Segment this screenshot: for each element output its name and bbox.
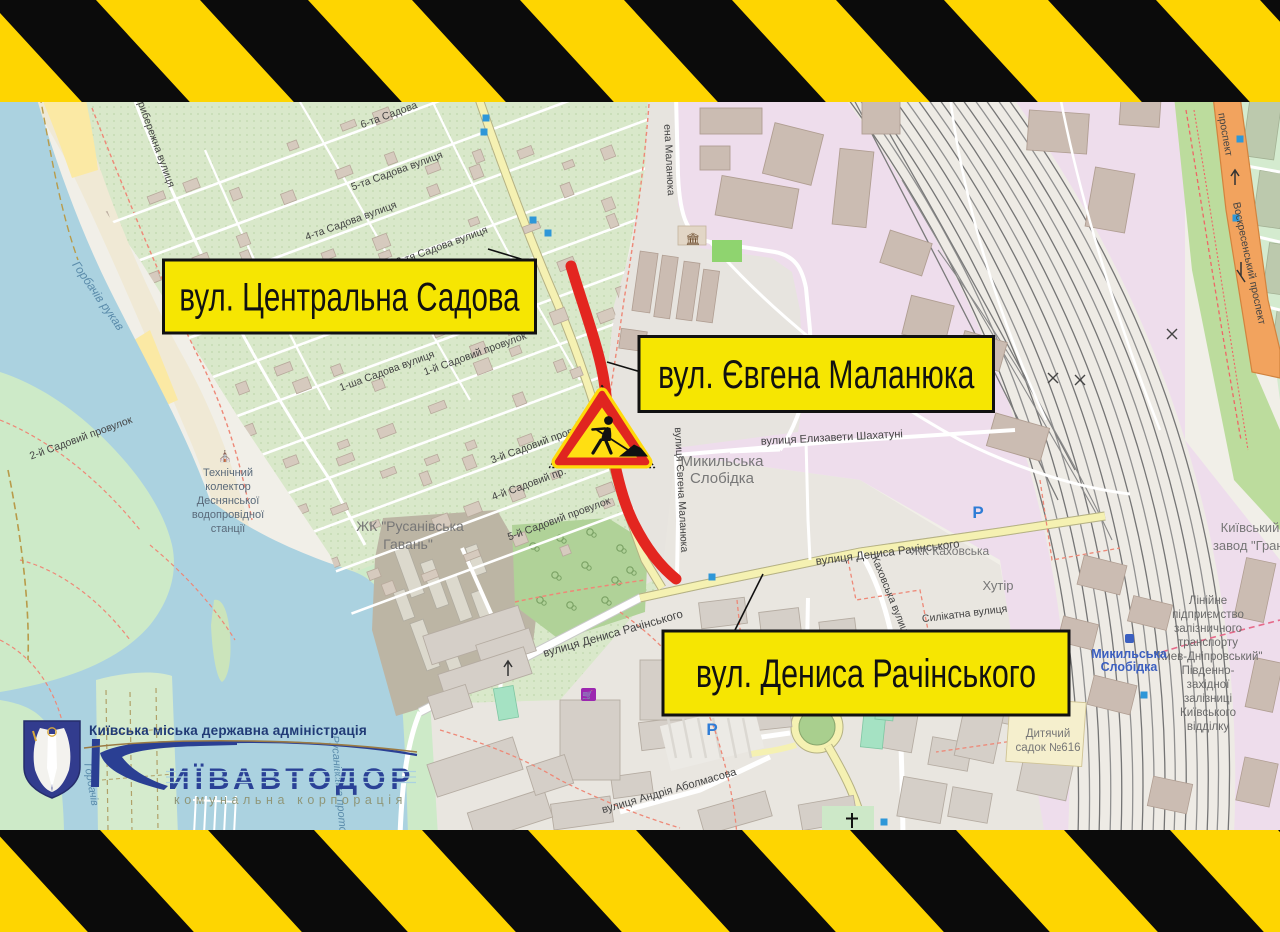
svg-text:Хутір: Хутір bbox=[983, 578, 1014, 593]
svg-text:завод "Граніт": завод "Граніт" bbox=[1213, 538, 1280, 553]
svg-text:садок №616: садок №616 bbox=[1015, 742, 1080, 754]
svg-text:Микильська: Микильська bbox=[1091, 647, 1168, 661]
svg-text:Київського: Київського bbox=[1180, 707, 1236, 719]
svg-text:Гавань": Гавань" bbox=[383, 536, 433, 552]
svg-text:Київський: Київський bbox=[1221, 520, 1280, 535]
svg-text:Дитячий: Дитячий bbox=[1026, 728, 1071, 740]
svg-text:🏛: 🏛 bbox=[685, 232, 700, 246]
svg-text:залізничного: залізничного bbox=[1174, 623, 1242, 635]
svg-text:Київська міська державна адмін: Київська міська державна адміністрація bbox=[89, 723, 367, 738]
svg-text:станції: станції bbox=[211, 523, 245, 535]
svg-text:Микильська: Микильська bbox=[681, 453, 765, 470]
svg-text:P: P bbox=[972, 503, 983, 522]
svg-text:залізниці: залізниці bbox=[1184, 693, 1232, 705]
svg-text:вул. Центральна Садова: вул. Центральна Садова bbox=[179, 275, 520, 319]
svg-text:P: P bbox=[706, 720, 717, 739]
svg-text:водопровідної: водопровідної bbox=[192, 509, 264, 521]
svg-text:відділку: відділку bbox=[1187, 721, 1230, 733]
svg-text:підприємство: підприємство bbox=[1172, 609, 1244, 621]
svg-text:Слобідка: Слобідка bbox=[690, 470, 755, 487]
svg-text:Лінійне: Лінійне bbox=[1189, 595, 1227, 607]
svg-text:⛪: ⛪ bbox=[218, 449, 232, 463]
svg-text:Деснянської: Деснянської bbox=[197, 495, 260, 507]
svg-text:Технічний: Технічний bbox=[203, 467, 253, 479]
svg-text:ИЇВАВТОДОР: ИЇВАВТОДОР bbox=[168, 763, 415, 796]
svg-text:🛒: 🛒 bbox=[582, 689, 593, 700]
svg-text:Слобідка: Слобідка bbox=[1101, 660, 1159, 674]
svg-text:західної: західної bbox=[1187, 679, 1230, 691]
svg-text:вул. Євгена Маланюка: вул. Євгена Маланюка bbox=[658, 353, 975, 397]
svg-text:ЖК "Русанівська: ЖК "Русанівська bbox=[356, 518, 464, 534]
svg-text:вул. Дениса Рачінського: вул. Дениса Рачінського bbox=[696, 651, 1036, 696]
svg-text:транспорту: транспорту bbox=[1178, 637, 1238, 649]
svg-text:ЖК Каховська: ЖК Каховська bbox=[911, 544, 990, 558]
svg-text:комунальна корпорація: комунальна корпорація bbox=[174, 793, 407, 807]
svg-text:колектор: колектор bbox=[205, 481, 250, 493]
svg-text:Південно-: Південно- bbox=[1182, 665, 1235, 677]
svg-text:"Киев-Дніпровський": "Киев-Дніпровський" bbox=[1154, 651, 1263, 663]
